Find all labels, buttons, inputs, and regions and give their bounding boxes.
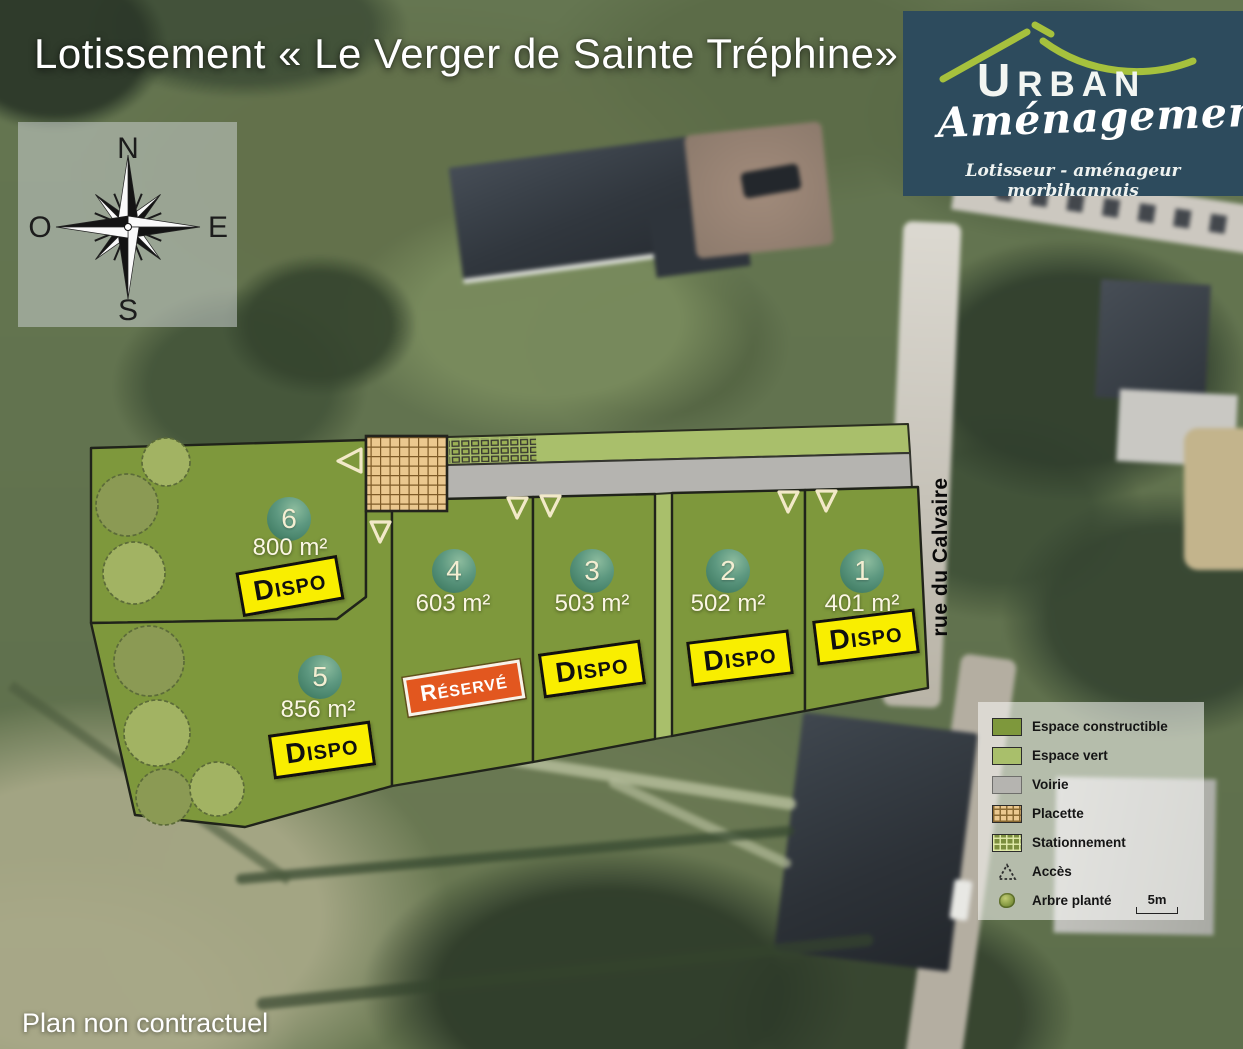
constructible-swatch-icon (992, 718, 1022, 736)
street-label: rue du Calvaire (929, 477, 953, 636)
stationnement-swatch-icon (992, 834, 1022, 852)
company-logo: URBAN Aménagement Lotisseur - aménageur … (903, 11, 1243, 196)
stationnement-strip (449, 437, 537, 463)
footer-note: Plan non contractuel (22, 1008, 268, 1039)
legend-label: Voirie (1032, 777, 1069, 792)
plot-4-number-badge: 4 (432, 549, 476, 593)
plot-1-number-badge: 1 (840, 549, 884, 593)
compass-east-label: E (208, 211, 228, 244)
legend-row-placette: Placette (992, 799, 1204, 828)
page-title: Lotissement « Le Verger de Sainte Tréphi… (34, 30, 898, 78)
scale-label: 5m (1136, 892, 1178, 907)
access-legend-icon (992, 862, 1022, 882)
plot-2-area-label: 502 m² (691, 590, 766, 618)
placette-square (366, 436, 447, 511)
tree-icon (124, 700, 190, 766)
plot-3-polygon (533, 494, 655, 762)
plot-2-number-badge: 2 (706, 549, 750, 593)
plot-5-area-label: 856 m² (281, 696, 356, 724)
legend-row-acces: Accès (992, 857, 1204, 886)
tree-icon (96, 474, 158, 536)
legend-row-voirie: Voirie (992, 770, 1204, 799)
compass-rose: N S E O (18, 122, 237, 327)
legend-label: Espace vert (1032, 748, 1108, 763)
legend-row-constructible: Espace constructible (992, 712, 1204, 741)
scale-bar-line (1136, 907, 1178, 914)
legend-panel: Espace constructible Espace vert Voirie … (978, 702, 1204, 920)
legend-label: Arbre planté (1032, 893, 1112, 908)
plot-4-area-label: 603 m² (416, 590, 491, 618)
scale-bar: 5m (1136, 892, 1178, 914)
legend-label: Placette (1032, 806, 1084, 821)
tree-icon (114, 626, 184, 696)
plot-3-area-label: 503 m² (555, 590, 630, 618)
legend-label: Stationnement (1032, 835, 1126, 850)
compass-icon: N S E O (18, 122, 237, 327)
tree-icon (103, 542, 165, 604)
legend-label: Accès (1032, 864, 1072, 879)
tree-legend-icon (992, 891, 1022, 911)
lotissement-plan-poster: 6 800 m² DISPO 5 856 m² DISPO 4 603 m² R… (0, 0, 1243, 1049)
tree-icon (142, 438, 190, 486)
compass-south-label: S (118, 294, 138, 327)
compass-north-label: N (117, 132, 139, 165)
voirie-swatch-icon (992, 776, 1022, 794)
logo-tagline: Lotisseur - aménageur morbihannais (903, 161, 1243, 201)
plot-5-number-badge: 5 (298, 655, 342, 699)
plot-3-number-badge: 3 (570, 549, 614, 593)
legend-row-vert: Espace vert (992, 741, 1204, 770)
compass-west-label: O (28, 211, 51, 244)
tree-icon (136, 769, 192, 825)
legend-label: Espace constructible (1032, 719, 1168, 734)
placette-swatch-icon (992, 805, 1022, 823)
espace-vert-corridor (655, 493, 672, 739)
plot-4-polygon (392, 497, 533, 786)
legend-row-stationnement: Stationnement (992, 828, 1204, 857)
tree-icon (190, 762, 244, 816)
espace-vert-swatch-icon (992, 747, 1022, 765)
